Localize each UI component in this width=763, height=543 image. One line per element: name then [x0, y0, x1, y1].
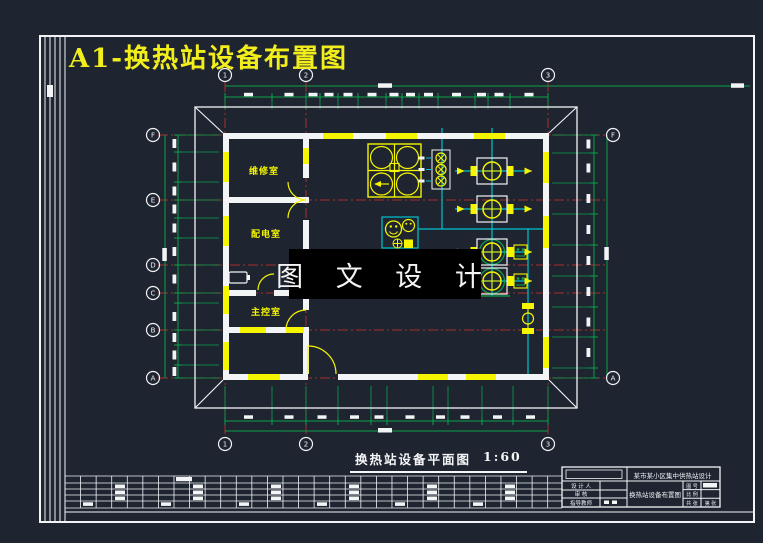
- dim-text-blob: [378, 83, 392, 88]
- room-label-power-distribution: 配电室: [238, 227, 294, 240]
- gauge-box: [382, 217, 418, 248]
- axis-bubble: 3: [542, 69, 555, 82]
- svg-text:3: 3: [546, 71, 550, 79]
- caption-scale: 1:60: [483, 449, 522, 468]
- svg-text:3: 3: [546, 440, 550, 448]
- titleblock-project-name: 某市某小区集中供热站设计: [626, 469, 719, 480]
- signature-table: [65, 476, 562, 508]
- plan-caption: 换热站设备平面图 1:60: [350, 449, 527, 473]
- axis-bubble: 3: [542, 438, 555, 451]
- room-label-maintenance: 维修室: [236, 164, 292, 177]
- cad-viewport: 112233FEDCBAFA A1-换热站设备布置图 维修室 配电室 主控室 图…: [0, 0, 763, 543]
- page-title: A1-换热站设备布置图: [69, 38, 348, 75]
- svg-text:2: 2: [304, 440, 308, 448]
- axis-bubble: D: [147, 259, 160, 272]
- axis-bubble: F: [147, 129, 160, 142]
- axis-bubble: 1: [219, 438, 232, 451]
- svg-text:B: B: [151, 326, 156, 334]
- svg-text:C: C: [151, 289, 156, 297]
- titleblock-field-sheet-total: 共 张: [684, 500, 700, 506]
- valve-group: [419, 150, 451, 189]
- svg-text:A: A: [611, 374, 616, 382]
- titleblock-field-designer: 设 计 人: [563, 482, 599, 489]
- axis-bubble: A: [147, 372, 160, 385]
- titleblock-field-scale: 比 例: [684, 491, 700, 497]
- titleblock-field-drawing-no: 图 号: [684, 483, 700, 489]
- svg-text:A: A: [151, 374, 156, 382]
- caption-title: 换热站设备平面图: [355, 449, 471, 468]
- svg-text:F: F: [611, 131, 615, 139]
- axis-bubble: E: [147, 194, 160, 207]
- axis-bubble: C: [147, 287, 160, 300]
- titleblock-field-advisor: 指导教师: [563, 499, 599, 506]
- svg-text:D: D: [150, 261, 155, 269]
- titleblock-field-sheet-no: 第 张: [702, 500, 719, 506]
- room-label-main-control: 主控室: [238, 305, 294, 318]
- pump-symbol: [455, 158, 532, 184]
- titleblock-field-reviewer: 审 核: [563, 490, 599, 497]
- heat-exchanger-unit: [368, 144, 421, 197]
- watermark-text: 图 文 设 计: [276, 255, 494, 294]
- watermark-overlay: 图 文 设 计: [289, 249, 481, 299]
- svg-text:F: F: [151, 131, 155, 139]
- axis-bubble: B: [147, 324, 160, 337]
- svg-text:1: 1: [223, 440, 227, 448]
- axis-bubble: A: [607, 372, 620, 385]
- titleblock-drawing-name: 换热站设备布置图: [628, 487, 682, 501]
- axis-bubble: 2: [300, 438, 313, 451]
- svg-text:E: E: [151, 196, 155, 204]
- axis-bubble: F: [607, 129, 620, 142]
- console-symbol: [229, 272, 250, 283]
